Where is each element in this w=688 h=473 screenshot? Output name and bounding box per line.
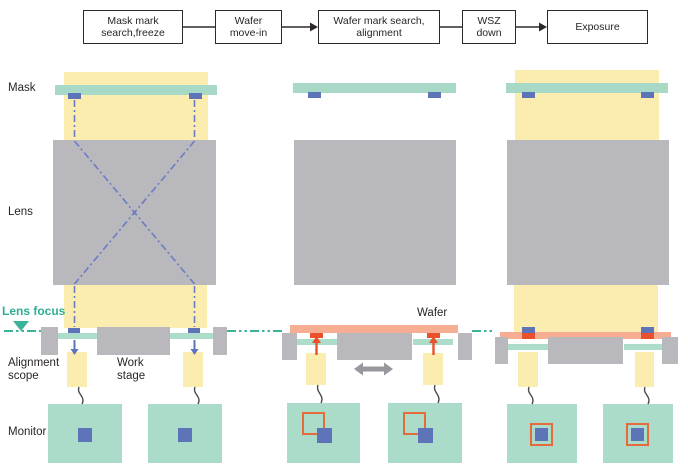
mask-mark-on-monitor-icon [535, 428, 548, 441]
wafer-mark-icon [641, 333, 654, 339]
work-stage-1 [41, 327, 58, 355]
work-stage-2 [282, 333, 297, 360]
label-lens-focus: Lens focus [2, 305, 65, 319]
reference-plate-2 [297, 339, 337, 345]
flow-step-exposure: Exposure [547, 10, 648, 44]
scope-cable-line [78, 385, 649, 404]
wafer-2 [290, 325, 458, 333]
work-stage-3 [495, 337, 508, 364]
mask-mark-on-monitor-icon [317, 428, 332, 443]
illumination-band-bottom-1 [64, 285, 207, 328]
mask-mark-on-monitor-icon [631, 428, 644, 441]
work-stage-2 [337, 333, 412, 360]
alignment-scope-3 [635, 352, 654, 387]
flow-step-wafer-mark-search: Wafer mark search, alignment [318, 10, 440, 44]
work-stage-2 [458, 333, 472, 360]
label-lens: Lens [8, 206, 33, 219]
work-stage-1 [97, 327, 170, 355]
mask-mark-on-monitor-icon [78, 428, 92, 442]
mask-mark-icon [68, 93, 81, 99]
work-stage-3 [548, 337, 623, 364]
reference-plate-3 [508, 344, 548, 350]
reference-plate-2 [413, 339, 453, 345]
lens-block-3 [507, 140, 669, 285]
lens-block-2 [294, 140, 456, 285]
exposure-beam-3 [514, 285, 658, 332]
illumination-band-top-3 [515, 70, 659, 140]
flow-arrow-icon [310, 23, 318, 32]
alignment-scope-1 [67, 352, 87, 387]
alignment-scope-2 [423, 353, 443, 385]
label-work-stage: Work stage [117, 357, 145, 383]
reference-plate-1 [58, 333, 97, 339]
flow-step-wafer-move-in: Wafer move-in [215, 10, 282, 44]
reference-plate-1 [170, 333, 213, 339]
stage-move-arrow-icon [354, 363, 393, 376]
alignment-exposure-diagram: Mask mark search,freeze Wafer move-in Wa… [0, 0, 688, 473]
illumination-band-top-1 [64, 72, 208, 140]
label-alignment-scope: Alignment scope [8, 357, 59, 383]
work-stage-3 [662, 337, 678, 364]
mask-mark-icon [522, 92, 535, 98]
wafer-mark-icon [310, 333, 323, 338]
lens-block-1 [53, 140, 216, 285]
alignment-scope-3 [518, 352, 538, 387]
mask-mark-icon [189, 93, 202, 99]
lens-focus-marker-icon [13, 321, 29, 331]
label-monitor: Monitor [8, 426, 46, 439]
wafer-mark-icon [522, 333, 535, 339]
wafer-mark-icon [427, 333, 440, 338]
flow-step-wsz-down: WSZ down [462, 10, 516, 44]
work-stage-1 [213, 327, 227, 355]
flow-arrow-icon [539, 23, 547, 32]
label-mask: Mask [8, 82, 35, 95]
label-wafer: Wafer [417, 307, 447, 320]
reference-plate-3 [624, 344, 662, 350]
mask-mark-icon [641, 92, 654, 98]
mask-mark-icon [308, 92, 321, 98]
mask-mark-on-monitor-icon [418, 428, 433, 443]
mask-mark-icon [428, 92, 441, 98]
alignment-scope-1 [183, 352, 203, 387]
flow-step-mask-mark-search: Mask mark search,freeze [83, 10, 183, 44]
alignment-scope-2 [306, 353, 326, 385]
mask-mark-on-monitor-icon [178, 428, 192, 442]
